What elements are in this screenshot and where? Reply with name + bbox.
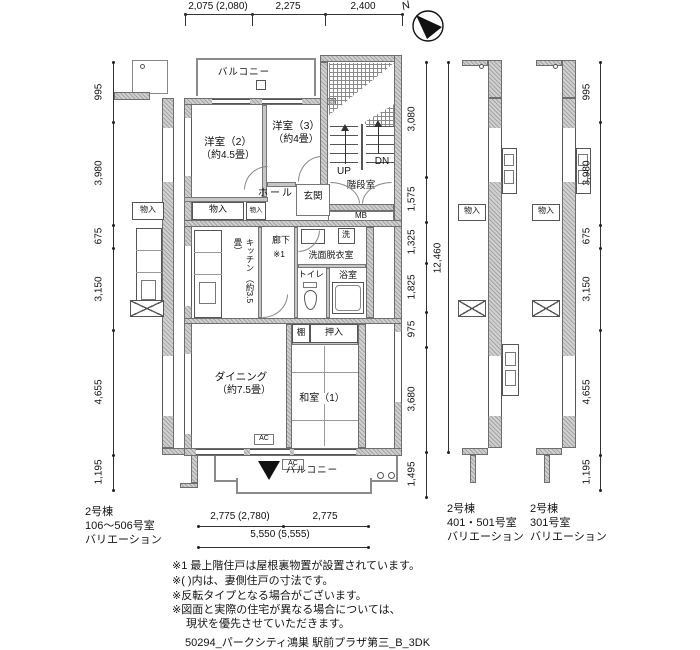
dim-label: 675 <box>94 228 105 245</box>
dim-line <box>426 62 427 497</box>
fixture-line <box>136 272 162 273</box>
fixture-line <box>136 250 162 251</box>
closet-label: 物入 <box>209 205 227 215</box>
dim-tick <box>599 61 602 64</box>
wall <box>358 324 366 448</box>
fixture <box>504 170 514 184</box>
door-arc <box>262 294 288 318</box>
wall <box>267 182 296 187</box>
dim-tick <box>599 329 602 332</box>
window-opening <box>184 118 192 176</box>
dim-tick <box>425 176 428 179</box>
door-arc <box>298 156 322 182</box>
wall <box>184 98 336 105</box>
tatami-line <box>292 420 358 421</box>
wall <box>366 227 374 318</box>
fixture <box>505 370 516 386</box>
room-size-yoshitsu3: （約4畳） <box>273 134 319 145</box>
strip-detail <box>479 64 484 69</box>
door-arc <box>298 230 320 252</box>
balcony-bottom-label: バルコニー <box>286 466 338 476</box>
dim-tick <box>599 224 602 227</box>
wall <box>326 268 330 318</box>
dim-label: 3,680 <box>407 386 418 411</box>
wall <box>462 60 488 66</box>
dim-tick <box>425 221 428 224</box>
fixture <box>505 352 516 366</box>
dn-label: DN <box>375 156 389 167</box>
stair-arrow <box>345 130 346 164</box>
dim-tick <box>197 525 200 528</box>
door-arc <box>244 166 268 190</box>
corridor-label: 廊下 <box>272 236 290 246</box>
fixture-line <box>194 274 222 275</box>
window-opening <box>184 354 192 434</box>
fixture <box>199 282 216 304</box>
dim-label: 1,825 <box>407 274 418 299</box>
wall <box>191 455 198 483</box>
toilet-tank <box>303 282 317 288</box>
room-label-yoshitsu3: 洋室（3） <box>272 121 320 133</box>
drain-circle <box>388 472 395 479</box>
hatch-box <box>458 300 486 317</box>
dim-label: 1,325 <box>407 229 418 254</box>
dim-tick <box>447 451 450 454</box>
bath-label: 浴室 <box>339 271 357 281</box>
hatch-box <box>532 300 560 317</box>
tatami-line <box>292 372 358 373</box>
dim-line <box>113 62 114 490</box>
dim-tick <box>425 346 428 349</box>
window-opening <box>488 128 502 182</box>
ac-label: AC <box>259 435 269 443</box>
wall <box>180 483 198 488</box>
wall <box>320 55 402 62</box>
window-opening <box>162 128 174 182</box>
dim-label-total: 12,460 <box>433 243 444 274</box>
dim-label: 3,980 <box>94 160 105 185</box>
meter-box-label: MB <box>355 212 367 221</box>
wall <box>562 60 576 98</box>
dim-tick <box>112 247 115 250</box>
toilet-label: トイレ <box>298 270 324 279</box>
dim-tick <box>197 546 200 549</box>
strip-left-balcony <box>132 60 168 94</box>
dim-tick <box>425 496 428 499</box>
dim-witness <box>252 14 253 26</box>
dim-tick <box>282 525 285 528</box>
dim-tick <box>599 454 602 457</box>
dim-label: 1,195 <box>582 459 593 484</box>
arrow-head <box>341 124 349 131</box>
dim-label: 2,275 <box>275 1 300 12</box>
dim-line <box>600 62 601 490</box>
dim-label: 4,655 <box>582 379 593 404</box>
note-line: ※( )内は、妻側住戸の寸法です。 <box>172 572 334 588</box>
hatch-box <box>130 300 164 317</box>
strip-detail <box>553 64 558 69</box>
drawing-title: 50294_パークシティ鴻巣 駅前プラザ第三_B_3DK <box>185 634 430 650</box>
dim-witness <box>402 14 403 26</box>
dim-label: 3,080 <box>407 106 418 131</box>
window-opening <box>250 449 290 455</box>
stair-arrow <box>378 126 379 154</box>
entry-direction-marker <box>258 461 280 480</box>
dim-tick <box>112 121 115 124</box>
strip-closet-label: 物入 <box>538 207 554 216</box>
dim-tick <box>112 454 115 457</box>
dim-tick <box>599 489 602 492</box>
bathtub-inner <box>335 285 361 311</box>
dim-label: 3,980 <box>582 160 593 185</box>
washroom-label: 洗面脱衣室 <box>308 251 353 261</box>
dim-label: 1,495 <box>407 461 418 486</box>
shelf-label: 棚 <box>297 328 306 337</box>
caption-left-variation: バリエーション <box>85 531 162 547</box>
dim-label: 3,150 <box>582 276 593 301</box>
dim-tick <box>425 61 428 64</box>
stair-divider-line <box>361 124 363 170</box>
wall <box>536 448 562 455</box>
dim-tick <box>112 329 115 332</box>
dim-label-total: 5,550 (5,555) <box>250 529 310 540</box>
dim-label: 2,400 <box>350 1 375 12</box>
dim-tick <box>112 224 115 227</box>
dim-line <box>448 62 449 452</box>
window-opening <box>262 99 302 104</box>
oshiire-label: 押入 <box>325 328 343 338</box>
note-line: 現状を優先させていただきます。 <box>186 615 350 631</box>
dim-label: 1,575 <box>407 186 418 211</box>
dim-line <box>198 547 368 548</box>
window-opening <box>294 449 356 455</box>
kitchen-label: キッチン （約3.5畳） <box>228 238 256 314</box>
dim-line <box>185 14 402 15</box>
corridor-note: ※1 <box>273 250 285 259</box>
dim-tick <box>112 61 115 64</box>
floor-plan-sheet: 2,075 (2,080) 2,275 2,400 N 995 3,980 67… <box>0 0 700 650</box>
washitsu-label: 和室（1） <box>297 393 347 404</box>
dim-tick <box>425 262 428 265</box>
dim-label: 975 <box>407 321 418 338</box>
balcony-fence-step <box>236 478 372 494</box>
dining-size: （約7.5畳） <box>217 385 271 396</box>
window-opening <box>562 128 576 182</box>
dim-tick <box>425 451 428 454</box>
dim-tick <box>447 61 450 64</box>
wall <box>470 455 476 483</box>
dim-label: 3,150 <box>94 276 105 301</box>
genkan-label: 玄関 <box>303 192 322 202</box>
dim-tick <box>425 311 428 314</box>
dim-tick <box>599 247 602 250</box>
wall <box>462 448 488 455</box>
caption-right2-variation: バリエーション <box>530 528 607 544</box>
dim-tick <box>112 489 115 492</box>
wall <box>488 60 502 98</box>
dim-tick <box>599 121 602 124</box>
wall <box>328 204 394 211</box>
wall <box>544 455 550 483</box>
room-label-yoshitsu2: 洋室（2） <box>204 137 252 149</box>
window-opening <box>196 449 244 455</box>
dim-label: 995 <box>94 84 105 101</box>
dim-witness <box>325 14 326 26</box>
strip-closet-label: 物入 <box>464 207 480 216</box>
wall <box>298 264 366 268</box>
window-opening <box>162 356 174 416</box>
dim-tick <box>367 525 370 528</box>
balcony-detail <box>256 80 266 90</box>
closet-label: 物入 <box>250 207 263 214</box>
drain-circle <box>377 472 384 479</box>
dim-label: 2,775 <box>312 511 337 522</box>
toilet-bowl <box>304 290 317 310</box>
window-opening <box>488 356 502 416</box>
wall <box>536 60 562 66</box>
dim-witness <box>185 14 186 26</box>
dim-label: 2,775 (2,780) <box>210 511 270 522</box>
room-size-yoshitsu2: （約4.5畳） <box>201 150 255 161</box>
up-label: UP <box>337 166 351 177</box>
dim-label: 995 <box>582 84 593 101</box>
window-opening <box>394 332 402 402</box>
window-opening <box>562 356 576 416</box>
dim-label: 4,655 <box>94 379 105 404</box>
dim-tick <box>367 546 370 549</box>
dim-label: 675 <box>582 228 593 245</box>
window-opening <box>212 99 250 104</box>
caption-right1-variation: バリエーション <box>447 528 524 544</box>
compass-icon <box>410 5 446 43</box>
wall <box>184 220 402 227</box>
dim-label: 1,195 <box>94 459 105 484</box>
washer-label: 洗 <box>342 231 350 240</box>
window-opening <box>184 246 192 306</box>
fixture <box>141 280 156 300</box>
fixture-line <box>194 252 222 253</box>
balcony-top-label: バルコニー <box>218 68 270 78</box>
strip-closet-label: 物入 <box>140 206 156 215</box>
dim-label: 2,075 (2,080) <box>188 1 248 12</box>
note-line: ※1 最上階住戸は屋根裏物置が設置されています。 <box>172 557 420 573</box>
dining-label: ダイニング <box>215 372 268 384</box>
wall <box>114 92 150 100</box>
arrow-head <box>374 120 382 127</box>
kitchen-name: キッチン <box>245 238 255 272</box>
fixture <box>504 154 514 166</box>
strip-detail <box>140 64 145 69</box>
